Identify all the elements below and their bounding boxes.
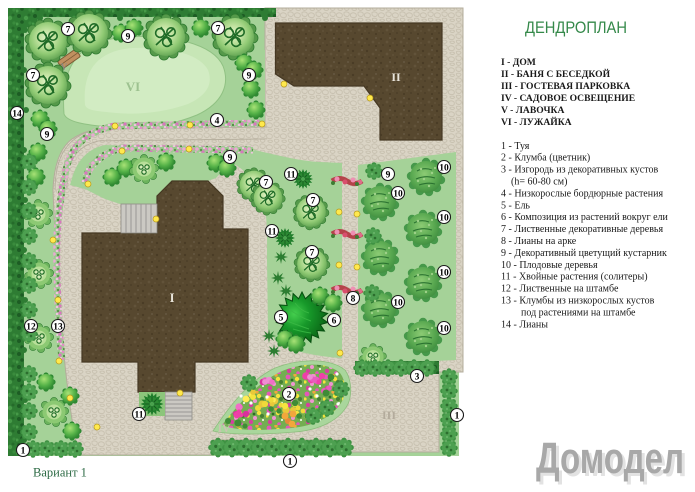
svg-text:III: III xyxy=(382,408,396,422)
svg-text:5 - Ель: 5 - Ель xyxy=(501,200,530,211)
svg-text:IV: IV xyxy=(218,423,231,435)
svg-text:I - ДОМ: I - ДОМ xyxy=(501,57,536,68)
svg-text:VI - ЛУЖАЙКА: VI - ЛУЖАЙКА xyxy=(501,116,572,128)
svg-text:Вариант 1: Вариант 1 xyxy=(33,466,87,480)
svg-text:8: 8 xyxy=(351,295,356,305)
svg-text:10: 10 xyxy=(439,269,449,279)
svg-text:10: 10 xyxy=(393,299,403,309)
svg-text:VI: VI xyxy=(126,79,140,94)
svg-text:9: 9 xyxy=(45,131,50,141)
svg-text:V - ЛАВОЧКА: V - ЛАВОЧКА xyxy=(501,105,564,116)
svg-text:1: 1 xyxy=(455,412,460,422)
svg-text:11: 11 xyxy=(135,411,144,421)
svg-text:7 - Лиственные декоративные де: 7 - Лиственные декоративные деревья xyxy=(501,224,663,235)
svg-text:3: 3 xyxy=(415,373,420,383)
svg-text:13 - Клумбы из низкорослых кус: 13 - Клумбы из низкорослых кустов xyxy=(501,296,655,307)
svg-text:I: I xyxy=(170,291,175,305)
svg-text:10: 10 xyxy=(439,214,449,224)
svg-text:8 - Лианы на арке: 8 - Лианы на арке xyxy=(501,236,577,247)
svg-text:III - ГОСТЕВАЯ ПАРКОВКА: III - ГОСТЕВАЯ ПАРКОВКА xyxy=(501,81,630,92)
svg-text:7: 7 xyxy=(216,25,221,35)
svg-text:4: 4 xyxy=(215,117,220,127)
svg-text:1: 1 xyxy=(288,458,293,468)
svg-text:10: 10 xyxy=(439,325,449,335)
svg-text:3 - Изгородь из декоративных к: 3 - Изгородь из декоративных кустов xyxy=(501,165,658,176)
svg-text:9: 9 xyxy=(386,171,391,181)
svg-text:7: 7 xyxy=(311,197,316,207)
svg-text:9: 9 xyxy=(126,33,131,43)
svg-text:IV - САДОВОЕ ОСВЕЩЕНИЕ: IV - САДОВОЕ ОСВЕЩЕНИЕ xyxy=(501,93,635,104)
svg-text:12 - Лиственные на штамбе: 12 - Лиственные на штамбе xyxy=(501,284,619,295)
svg-text:13: 13 xyxy=(53,323,63,333)
svg-text:6: 6 xyxy=(332,317,337,327)
svg-text:1 - Туя: 1 - Туя xyxy=(501,141,530,152)
svg-text:5: 5 xyxy=(279,314,284,324)
svg-text:12: 12 xyxy=(26,323,36,333)
svg-text:7: 7 xyxy=(310,249,315,259)
svg-text:Домодел: Домодел xyxy=(536,434,684,483)
svg-text:ДЕНДРОПЛАН: ДЕНДРОПЛАН xyxy=(525,19,627,37)
svg-text:(h= 60-80 см): (h= 60-80 см) xyxy=(511,177,567,188)
svg-text:2: 2 xyxy=(287,391,292,401)
svg-text:14 - Лианы: 14 - Лианы xyxy=(501,319,548,330)
svg-text:10 - Плодовые деревья: 10 - Плодовые деревья xyxy=(501,260,598,271)
svg-text:под растениями на штамбе: под растениями на штамбе xyxy=(521,307,636,318)
svg-text:II - БАНЯ С БЕСЕДКОЙ: II - БАНЯ С БЕСЕДКОЙ xyxy=(501,68,611,80)
svg-text:7: 7 xyxy=(66,26,71,36)
svg-text:11: 11 xyxy=(287,171,296,181)
svg-text:7: 7 xyxy=(31,72,36,82)
svg-text:14: 14 xyxy=(12,110,22,120)
svg-text:2 - Клумба (цветник): 2 - Клумба (цветник) xyxy=(501,153,590,164)
svg-text:9: 9 xyxy=(247,72,252,82)
svg-text:7: 7 xyxy=(264,179,269,189)
svg-text:11 - Хвойные растения (солитер: 11 - Хвойные растения (солитеры) xyxy=(501,272,648,283)
svg-text:10: 10 xyxy=(439,164,449,174)
svg-text:11: 11 xyxy=(268,228,277,238)
svg-text:1: 1 xyxy=(21,447,26,457)
svg-text:10: 10 xyxy=(393,190,403,200)
svg-text:9 - Декоративный цветущий куст: 9 - Декоративный цветущий кустарник xyxy=(501,248,667,259)
svg-text:II: II xyxy=(391,70,401,84)
svg-text:9: 9 xyxy=(228,154,233,164)
svg-text:4 - Низкорослые бордюрные раст: 4 - Низкорослые бордюрные растения xyxy=(501,188,663,199)
svg-text:6 - Композиция из растений вок: 6 - Композиция из растений вокруг ели xyxy=(501,212,669,223)
